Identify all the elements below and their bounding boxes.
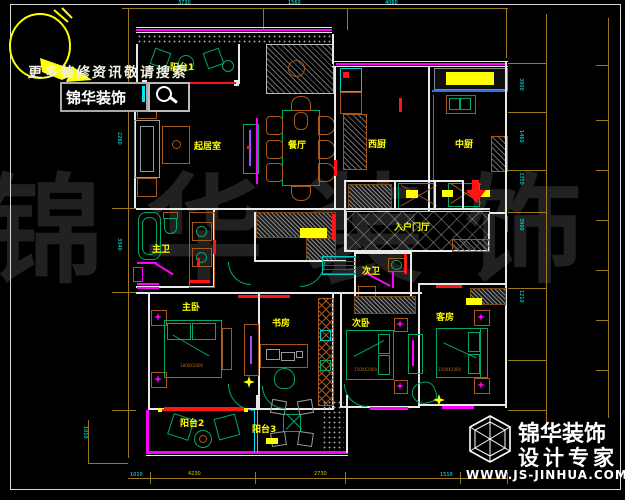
room-label-dining: 餐厅 bbox=[288, 142, 306, 151]
kitchen-island bbox=[343, 114, 367, 170]
dimension-text-left: 3340 bbox=[116, 238, 121, 251]
wall-segment bbox=[332, 66, 508, 67]
table-decor bbox=[172, 140, 181, 149]
room-label-balcony3: 阳台3 bbox=[252, 426, 276, 435]
table-centerpiece bbox=[294, 112, 308, 130]
dimension-line-margin bbox=[608, 18, 609, 418]
dimension-text-top: 1560 bbox=[288, 1, 301, 6]
dimension-tick bbox=[255, 472, 256, 484]
dimension-tick bbox=[508, 288, 546, 289]
dimension-line bbox=[88, 420, 89, 463]
search-slogan: 更多装修资讯敬请搜索 bbox=[27, 62, 188, 82]
dining-chair bbox=[318, 116, 335, 135]
window-line-red bbox=[238, 295, 290, 298]
wall-segment bbox=[434, 182, 436, 208]
room-label-master-bedroom: 主卧 bbox=[182, 304, 200, 313]
wall-segment bbox=[340, 292, 342, 408]
dimension-tick bbox=[112, 410, 136, 411]
threshold bbox=[137, 287, 159, 289]
dimension-line-right bbox=[546, 14, 547, 430]
brand-name-top: 锦华装饰 bbox=[66, 87, 126, 108]
bookshelf bbox=[318, 298, 334, 406]
tv-marker bbox=[247, 146, 250, 149]
dimension-tick bbox=[596, 170, 608, 171]
bed-bench bbox=[222, 328, 232, 370]
pillow bbox=[378, 334, 390, 354]
sink-bowl bbox=[196, 226, 207, 237]
window-line bbox=[370, 407, 408, 410]
room-label-second-bath: 次卫 bbox=[362, 268, 380, 277]
dimension-tick bbox=[460, 472, 461, 484]
sideboard bbox=[452, 239, 490, 252]
wall-segment bbox=[334, 66, 336, 210]
dimension-line-top bbox=[122, 8, 508, 9]
headboard bbox=[480, 328, 488, 378]
dining-chair bbox=[266, 163, 283, 182]
floorplan-image: 锦华装饰 3730 1560 4060 2260 3340 1010 3900 … bbox=[0, 0, 625, 500]
door-jamb-red bbox=[334, 160, 337, 176]
door-jamb-red bbox=[190, 280, 210, 283]
dimension-text-right: 1460 bbox=[518, 130, 523, 143]
entry-closet bbox=[348, 184, 392, 210]
balcony-railing bbox=[146, 451, 348, 454]
wall-segment bbox=[344, 208, 346, 252]
window-line-red bbox=[436, 285, 462, 288]
dimension-tick bbox=[150, 472, 151, 484]
highlight-marker bbox=[300, 228, 327, 238]
wall-segment bbox=[146, 455, 348, 456]
wall-segment bbox=[354, 252, 412, 254]
door-jamb-red bbox=[213, 240, 216, 254]
appliance-marker bbox=[343, 72, 349, 78]
dining-chair bbox=[318, 163, 335, 182]
entry-arrow-head bbox=[466, 190, 486, 203]
patio-chair bbox=[297, 399, 314, 415]
wall-segment bbox=[394, 182, 396, 208]
pebble-path bbox=[322, 400, 344, 452]
dimension-tick bbox=[596, 220, 608, 221]
wall-segment bbox=[136, 27, 332, 28]
wall-segment bbox=[256, 395, 258, 410]
window-line bbox=[336, 63, 506, 65]
keyboard bbox=[281, 352, 295, 361]
dimension-tick bbox=[596, 320, 608, 321]
bed-size-text: 1500X2000 bbox=[438, 368, 461, 372]
nightstand bbox=[474, 310, 490, 326]
pillow bbox=[468, 332, 480, 352]
nightstand bbox=[394, 318, 408, 332]
dimension-tick bbox=[345, 472, 346, 484]
room-label-study: 书房 bbox=[272, 320, 290, 329]
wall-segment bbox=[148, 292, 150, 410]
dimension-text-left: 1010 bbox=[82, 426, 87, 439]
dimension-tick bbox=[508, 112, 546, 113]
dimension-text-bottom: 4230 bbox=[188, 472, 201, 477]
dimension-extension bbox=[506, 8, 507, 58]
bath-cabinet bbox=[322, 256, 356, 275]
shower-screen bbox=[392, 272, 394, 288]
dimension-text-bottom: 1010 bbox=[130, 473, 143, 478]
wardrobe bbox=[354, 296, 416, 314]
dining-chair bbox=[318, 140, 335, 159]
toilet-bowl bbox=[391, 260, 402, 270]
dimension-tick bbox=[596, 270, 608, 271]
dimension-tick bbox=[508, 170, 546, 171]
threshold bbox=[137, 283, 159, 285]
patio-chair bbox=[297, 431, 314, 447]
patio-chair bbox=[270, 399, 287, 415]
wall-segment bbox=[238, 44, 240, 84]
dimension-text-bottom: 1510 bbox=[440, 473, 453, 478]
room-label-balcony2: 阳台2 bbox=[180, 420, 204, 429]
room-label-entry-hall: 入户门厅 bbox=[394, 224, 430, 233]
wall-segment bbox=[332, 61, 508, 62]
armchair bbox=[137, 178, 157, 197]
pillow bbox=[192, 323, 216, 340]
wall-segment bbox=[420, 283, 507, 285]
dimension-tick bbox=[508, 360, 546, 361]
plant-icon bbox=[222, 60, 234, 72]
wall-segment bbox=[505, 62, 507, 212]
dimension-text-bottom: 2730 bbox=[314, 472, 327, 477]
wall-segment bbox=[344, 182, 346, 208]
wall-segment bbox=[136, 208, 346, 210]
wall-segment bbox=[462, 182, 464, 208]
window-line bbox=[136, 29, 332, 31]
table-decor bbox=[199, 435, 207, 443]
shelf-item bbox=[320, 330, 331, 341]
wall-segment bbox=[505, 212, 507, 408]
dimension-tick bbox=[596, 370, 608, 371]
nightstand bbox=[474, 378, 490, 394]
wall-segment bbox=[136, 32, 332, 33]
sink-bowl bbox=[449, 98, 460, 110]
dining-chair bbox=[291, 96, 311, 111]
wall-segment bbox=[332, 34, 334, 64]
dimension-text-right: 3350 bbox=[518, 172, 523, 185]
dimension-tick bbox=[508, 410, 546, 411]
pillow bbox=[378, 355, 390, 375]
dimension-text-right: 1210 bbox=[518, 290, 523, 303]
bed-size-text: 1500X2000 bbox=[354, 368, 377, 372]
room-label-second-bedroom: 次卧 bbox=[352, 320, 370, 329]
highlight-marker bbox=[266, 438, 278, 444]
wall-segment bbox=[410, 252, 412, 302]
tv-feature-wall bbox=[256, 118, 258, 184]
dimension-text-left: 2260 bbox=[116, 132, 121, 145]
highlight-marker bbox=[442, 190, 453, 197]
dimension-tick bbox=[596, 65, 608, 66]
wall-segment bbox=[344, 208, 490, 210]
planting-strip bbox=[137, 34, 331, 44]
door-jamb-red bbox=[197, 258, 200, 266]
wall-segment bbox=[346, 395, 348, 453]
toilet bbox=[164, 218, 177, 234]
window-jamb-marker bbox=[158, 408, 162, 412]
highlight-cabinet bbox=[446, 72, 494, 85]
highlight-marker bbox=[406, 190, 418, 198]
computer-monitor bbox=[266, 349, 280, 360]
dimension-text-top: 4060 bbox=[385, 1, 398, 6]
room-label-living: 起居室 bbox=[194, 143, 221, 152]
window-line bbox=[442, 406, 474, 409]
company-logo-cube bbox=[468, 414, 512, 464]
dimension-tick bbox=[112, 208, 136, 209]
window-jamb-marker bbox=[244, 408, 248, 412]
room-label-guest-room: 客房 bbox=[436, 314, 454, 323]
room-label-chinese-kitchen: 中厨 bbox=[455, 141, 473, 150]
tv-screen bbox=[250, 336, 252, 364]
dimension-tick bbox=[508, 63, 546, 64]
wall-segment bbox=[136, 292, 422, 294]
dimension-tick bbox=[112, 292, 136, 293]
dimension-line bbox=[88, 463, 128, 464]
dimension-text-right: 3900 bbox=[518, 78, 523, 91]
highlight-marker bbox=[466, 298, 482, 305]
dimension-tick bbox=[596, 120, 608, 121]
kitchen-appliance bbox=[340, 92, 362, 114]
dimension-text-top: 3730 bbox=[178, 1, 191, 6]
dining-chair bbox=[266, 140, 283, 159]
shower-fixture bbox=[133, 267, 143, 282]
brand-tick bbox=[142, 86, 145, 102]
window-sill bbox=[432, 90, 508, 92]
mouse bbox=[296, 351, 303, 358]
door-jamb-red bbox=[399, 98, 402, 112]
plant-icon bbox=[288, 60, 305, 77]
dimension-extension bbox=[128, 8, 129, 30]
bed-size-text: 1800X2000 bbox=[180, 364, 203, 368]
dimension-tick bbox=[508, 212, 546, 213]
balcony-railing bbox=[146, 410, 149, 454]
dimension-line-bottom bbox=[128, 478, 508, 479]
wall-segment bbox=[344, 180, 464, 182]
wall-segment bbox=[254, 212, 256, 262]
shelf-item bbox=[320, 360, 331, 371]
nightstand bbox=[394, 380, 408, 394]
room-label-west-kitchen: 西厨 bbox=[368, 141, 386, 150]
dimension-extension bbox=[347, 8, 348, 30]
dining-chair bbox=[266, 116, 283, 135]
door-jamb-red bbox=[332, 214, 335, 240]
room-label-master-bath: 主卫 bbox=[152, 246, 170, 255]
closet-rail bbox=[412, 340, 414, 366]
brand-website: WWW.JS-JINHUA.COM bbox=[466, 468, 625, 482]
closet bbox=[408, 334, 423, 374]
sink-bowl bbox=[460, 98, 471, 110]
window-line-red bbox=[162, 409, 246, 411]
sofa-cushions bbox=[140, 126, 154, 172]
dimension-text-right: 3900 bbox=[518, 218, 523, 231]
